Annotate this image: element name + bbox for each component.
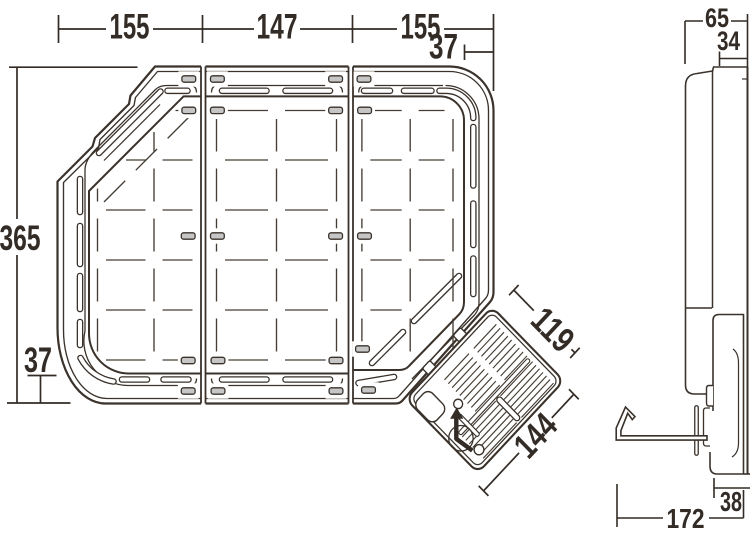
- svg-text:38: 38: [720, 486, 742, 517]
- svg-text:147: 147: [257, 8, 298, 47]
- svg-text:37: 37: [24, 341, 52, 380]
- svg-text:155: 155: [110, 8, 150, 47]
- svg-text:37: 37: [429, 28, 458, 67]
- svg-text:365: 365: [0, 219, 41, 258]
- svg-text:34: 34: [717, 26, 740, 56]
- svg-text:172: 172: [667, 503, 705, 534]
